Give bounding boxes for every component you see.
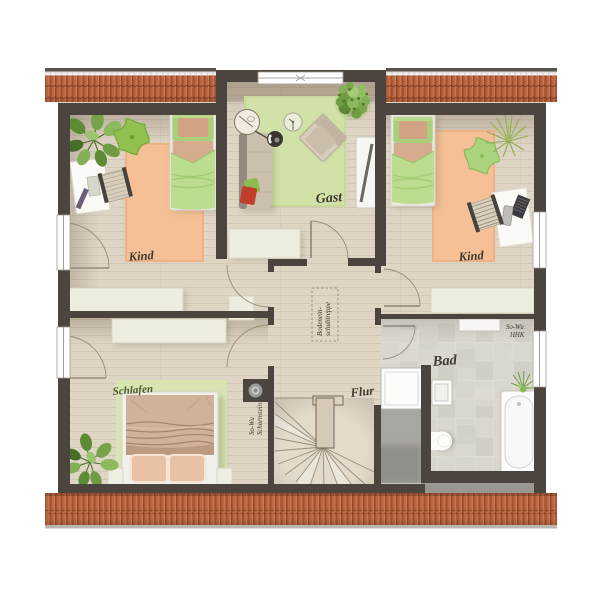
svg-text:Gast: Gast: [315, 190, 344, 207]
svg-text:Flur: Flur: [349, 383, 375, 400]
svg-text:Bodenein-: Bodenein-: [316, 307, 324, 336]
svg-text:So-Wu: So-Wu: [506, 324, 524, 331]
svg-text:Kind: Kind: [127, 248, 155, 264]
svg-text:Bad: Bad: [431, 352, 458, 370]
svg-text:Schornstein: Schornstein: [257, 402, 264, 435]
svg-text:Kind: Kind: [457, 248, 485, 264]
svg-text:So-Wu: So-Wu: [249, 417, 256, 435]
svg-text:HHK: HHK: [509, 332, 525, 339]
svg-text:schubtreppe: schubtreppe: [324, 302, 332, 336]
